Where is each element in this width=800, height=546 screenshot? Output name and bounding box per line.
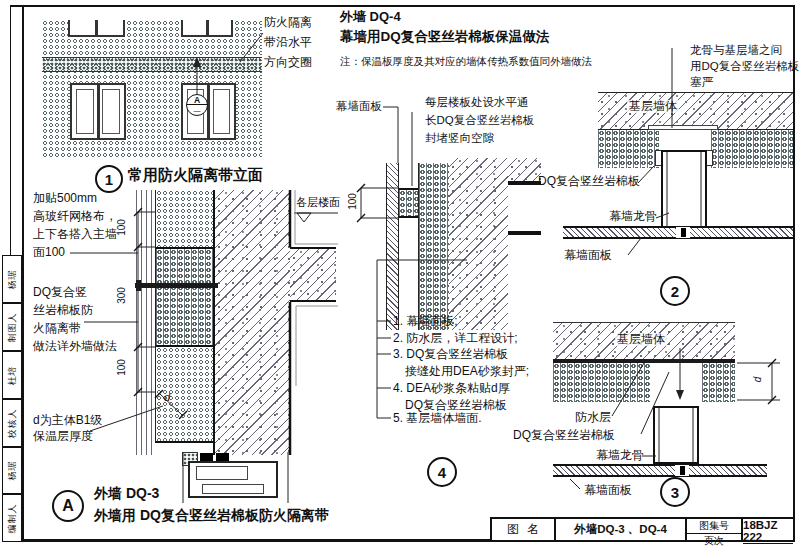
atlas-number-value: 18BJZ 222 xyxy=(743,519,793,544)
signature-name: 杜培 xyxy=(2,351,22,399)
title-block: 图名 外墙DQ-3 、DQ-4 图集号 页次 18BJZ 222 6 xyxy=(490,517,795,542)
title-block-name-label: 图名 xyxy=(492,519,556,540)
signature-role: 制图人 xyxy=(2,303,22,351)
linework-overlay xyxy=(0,0,800,546)
signature-name: 杨琚 xyxy=(2,255,22,303)
signature-role: 编制人 xyxy=(2,494,22,542)
atlas-number-label: 图集号 xyxy=(687,519,741,534)
page-number-label: 页次 xyxy=(687,534,741,546)
atlas-drawing-page: A — 防火隔离 带沿水平 方向交圈 1 常用防火隔离带立面 外墙 DQ-4 幕… xyxy=(0,0,800,546)
signature-role: 校核人 xyxy=(2,399,22,447)
drawing-name: 外墙DQ-3 、DQ-4 xyxy=(556,519,687,540)
down-arrow xyxy=(676,390,684,400)
level-symbol xyxy=(297,213,311,222)
marker-arrow xyxy=(193,57,201,67)
signature-name: 杨琚 xyxy=(2,447,22,494)
